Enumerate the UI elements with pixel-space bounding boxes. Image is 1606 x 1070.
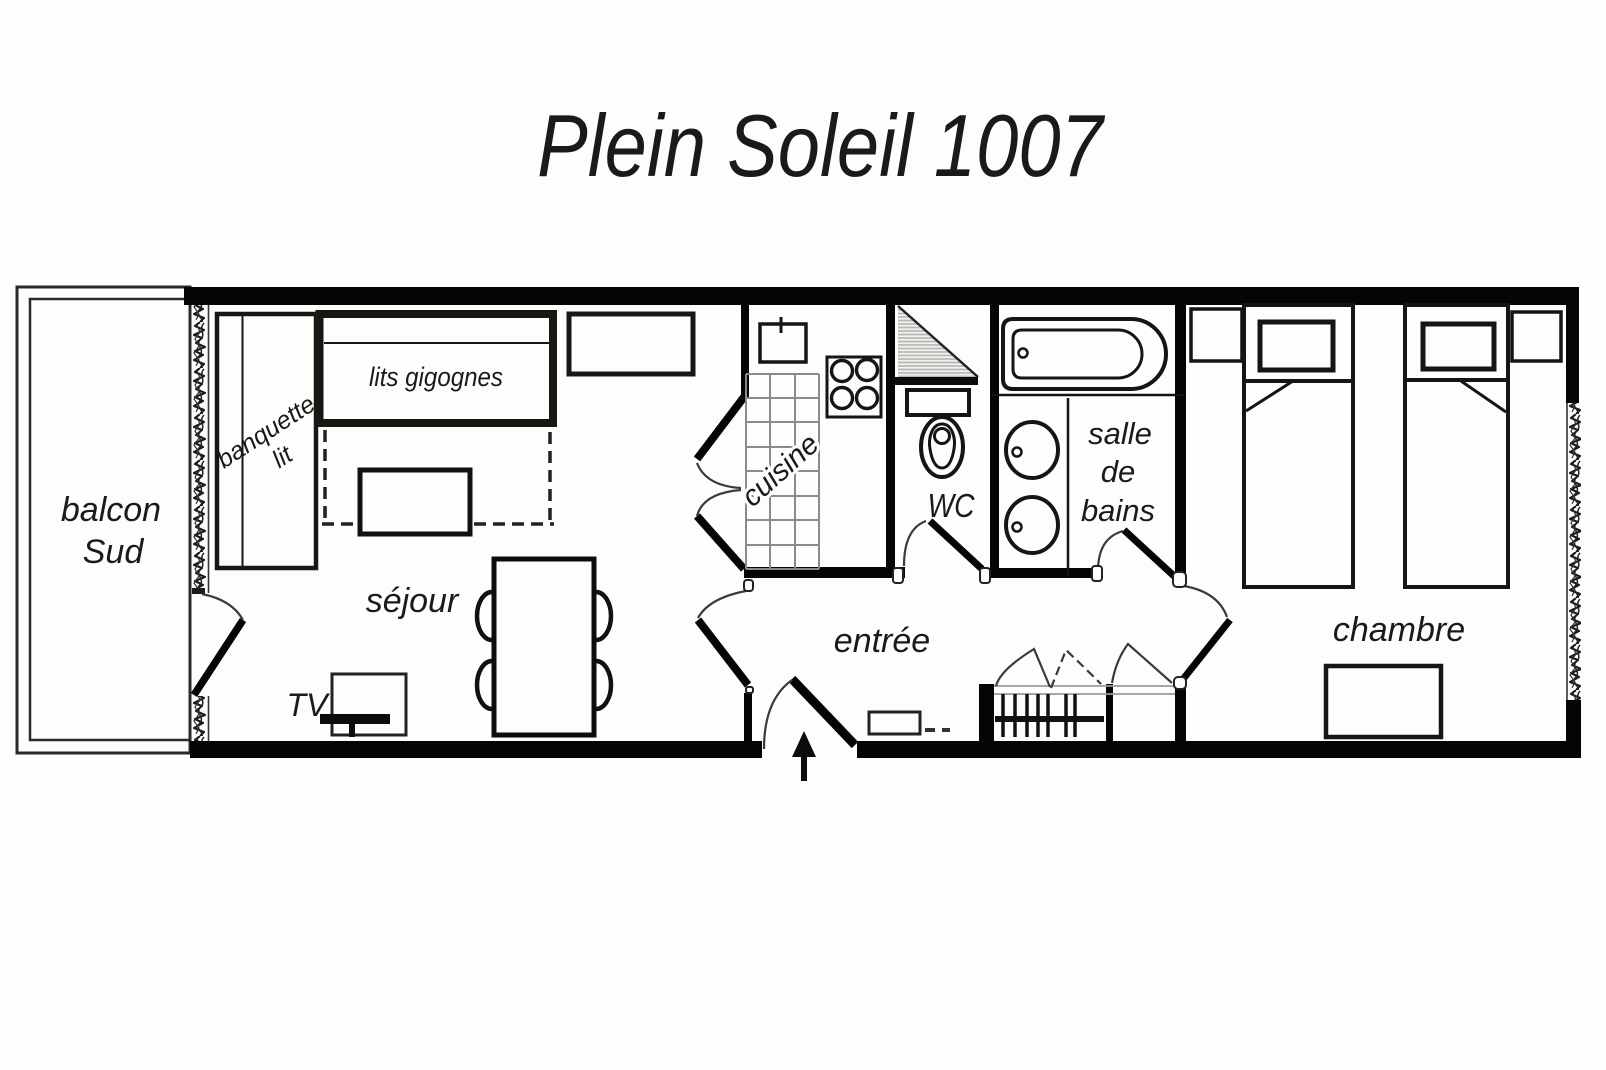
svg-text:de: de: [1101, 454, 1135, 489]
svg-text:TV: TV: [287, 687, 331, 723]
svg-text:WC: WC: [928, 487, 976, 524]
svg-text:chambre: chambre: [1333, 611, 1465, 649]
svg-text:Sud: Sud: [83, 533, 145, 571]
svg-text:séjour: séjour: [366, 582, 460, 620]
svg-text:salle: salle: [1088, 416, 1152, 451]
svg-text:balcon: balcon: [61, 491, 161, 529]
svg-text:entrée: entrée: [834, 622, 930, 660]
svg-text:lits gigognes: lits gigognes: [369, 362, 503, 392]
svg-text:bains: bains: [1081, 493, 1155, 528]
svg-text:Plein Soleil 1007: Plein Soleil 1007: [537, 98, 1106, 195]
